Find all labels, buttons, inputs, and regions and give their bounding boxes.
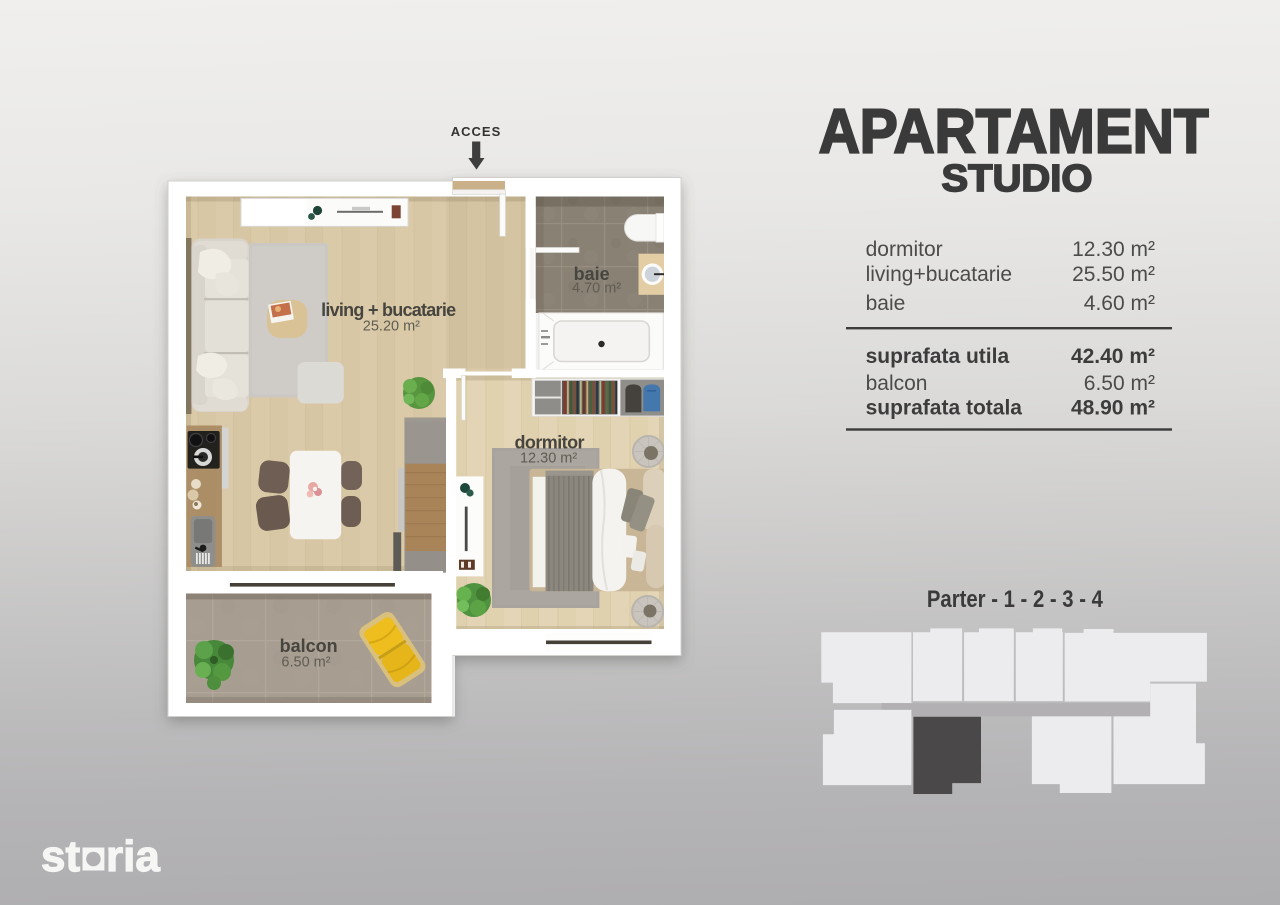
svg-text:ria: ria [106,832,160,881]
svg-text:4.60 m²: 4.60 m² [1084,292,1155,315]
svg-text:48.90 m²: 48.90 m² [1071,397,1155,420]
svg-text:12.30 m²: 12.30 m² [520,451,577,467]
svg-text:suprafata utila: suprafata utila [866,345,1010,368]
svg-text:STUDIO: STUDIO [942,158,1093,200]
svg-text:baie: baie [866,292,906,315]
svg-text:APARTAMENT: APARTAMENT [819,98,1209,167]
svg-text:Parter - 1 - 2 - 3 - 4: Parter - 1 - 2 - 3 - 4 [927,586,1104,613]
svg-text:6.50 m²: 6.50 m² [281,655,330,671]
svg-text:living + bucatarie: living + bucatarie [321,300,456,320]
svg-text:living+bucatarie: living+bucatarie [866,263,1013,286]
svg-text:dormitor: dormitor [866,238,943,261]
svg-text:25.20 m²: 25.20 m² [363,319,420,335]
svg-text:balcon: balcon [280,636,338,656]
svg-text:ACCES: ACCES [451,124,502,139]
svg-text:balcon: balcon [866,372,928,395]
svg-text:st: st [41,832,80,881]
svg-text:12.30 m²: 12.30 m² [1072,238,1155,261]
svg-text:suprafata totala: suprafata totala [866,397,1023,420]
svg-text:6.50 m²: 6.50 m² [1084,372,1155,395]
svg-text:42.40 m²: 42.40 m² [1071,345,1155,368]
svg-text:4.70 m²: 4.70 m² [572,281,621,297]
svg-text:25.50 m²: 25.50 m² [1072,263,1155,286]
svg-text:dormitor: dormitor [515,433,585,453]
